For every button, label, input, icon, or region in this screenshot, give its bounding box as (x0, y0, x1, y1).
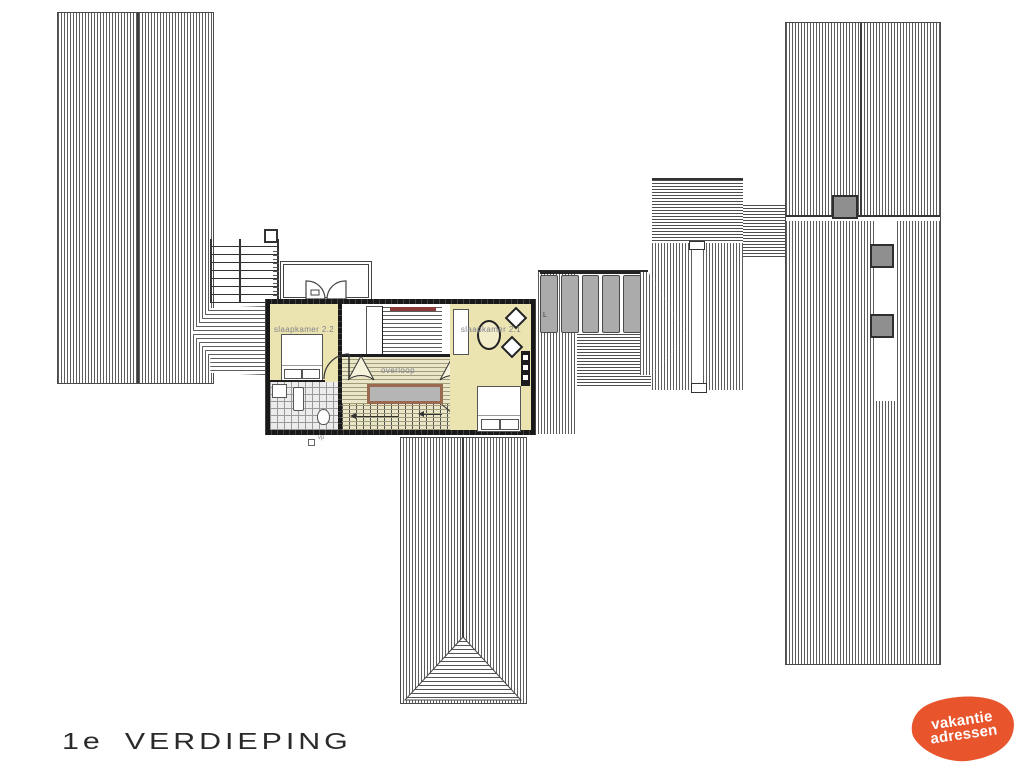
pillow (500, 419, 519, 430)
roof-right (785, 22, 941, 665)
ridge-end-block-bottom (691, 383, 707, 393)
stairwell-void (367, 384, 443, 404)
roof-panel (582, 275, 600, 333)
roof-ridge-line (137, 13, 139, 383)
ridge-end-block-top (689, 241, 705, 250)
roof-panel (540, 275, 558, 333)
bed-blanket-line (282, 365, 322, 366)
roof-panels (540, 275, 641, 333)
roof-panel (623, 275, 641, 333)
roof-block-horizontal (652, 178, 743, 244)
bed-blanket-line (478, 415, 520, 416)
bathroom-wall (270, 380, 325, 382)
pillow (284, 369, 302, 379)
railing-end-post (264, 229, 278, 243)
pillow (481, 419, 500, 430)
double-door-arcs (304, 278, 348, 300)
plan-interior: slaapkamer 2.2 overloop (270, 304, 531, 430)
radiator-cell (523, 375, 528, 380)
roof-connector-band (743, 203, 785, 257)
floor-number: 1e (62, 728, 104, 754)
toilet (317, 409, 330, 425)
exterior-stair-railing (210, 239, 279, 303)
room-label-landing: overloop (374, 366, 422, 375)
wall-tick-strip (273, 250, 279, 300)
sink (293, 387, 304, 411)
flat-roof-bottom-strip (577, 333, 651, 386)
vp-note: vp (318, 435, 324, 441)
ridge-gap (694, 243, 702, 390)
room-label-bedroom-2-1: slaapkamer 2.1 (455, 325, 527, 334)
stair-arrow-head (350, 413, 356, 419)
shower (272, 384, 287, 398)
marker-square (308, 439, 315, 446)
roof-top-left (57, 12, 214, 384)
roof-panel (561, 275, 579, 333)
bed (477, 386, 521, 432)
skylight (870, 244, 894, 268)
skylight (832, 195, 858, 219)
pillow (302, 369, 320, 379)
staircase-treads (342, 404, 450, 430)
panel-top-bar (540, 271, 640, 274)
radiator-cell (523, 355, 528, 360)
roof-bottom-center (400, 437, 527, 705)
floor-title: 1eVERDIEPING (62, 728, 352, 755)
stair-arrow-line (354, 416, 398, 417)
floorplan-page: L slaapkamer 2.2 (0, 0, 1024, 768)
floor-word: VERDIEPING (125, 728, 352, 754)
skylight (870, 314, 894, 338)
vakantieadressen-logo: vakantie adressen (903, 692, 1021, 766)
vide-opening (382, 306, 444, 356)
bed (281, 334, 323, 382)
white-gap (442, 306, 450, 356)
panel-letter: L (543, 312, 547, 319)
radiator (521, 351, 530, 386)
fan-door-left (345, 355, 377, 383)
radiator-cell (523, 365, 528, 370)
room-label-bedroom-2-2: slaapkamer 2.2 (270, 325, 338, 334)
stair-arrow-line (422, 414, 442, 415)
roof-right-ridge (860, 23, 862, 216)
stair-arrow-head (418, 411, 424, 417)
roof-right-split-gap (786, 217, 940, 221)
railing-post (239, 239, 241, 303)
red-wall-strip (390, 307, 436, 311)
roof-panel (602, 275, 620, 333)
